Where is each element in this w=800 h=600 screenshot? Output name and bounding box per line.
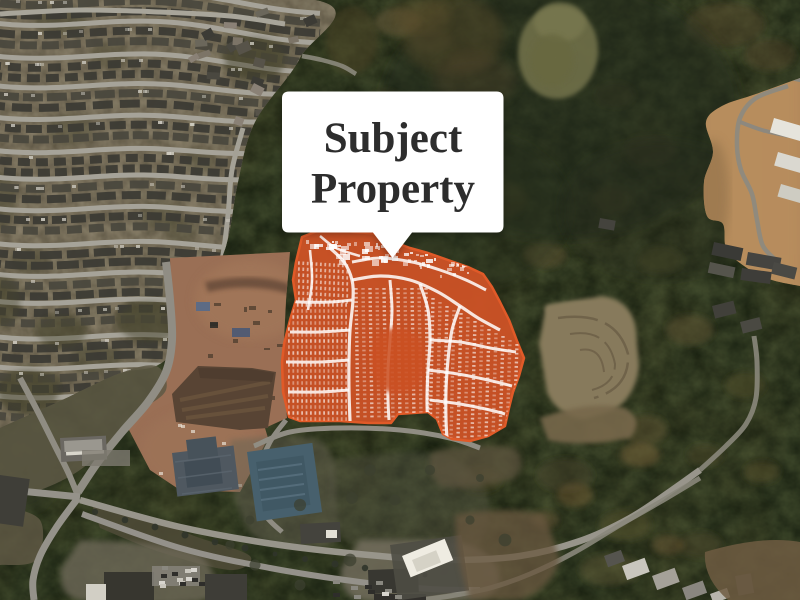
svg-text:Subject: Subject: [324, 115, 463, 162]
svg-text:Property: Property: [311, 166, 475, 213]
